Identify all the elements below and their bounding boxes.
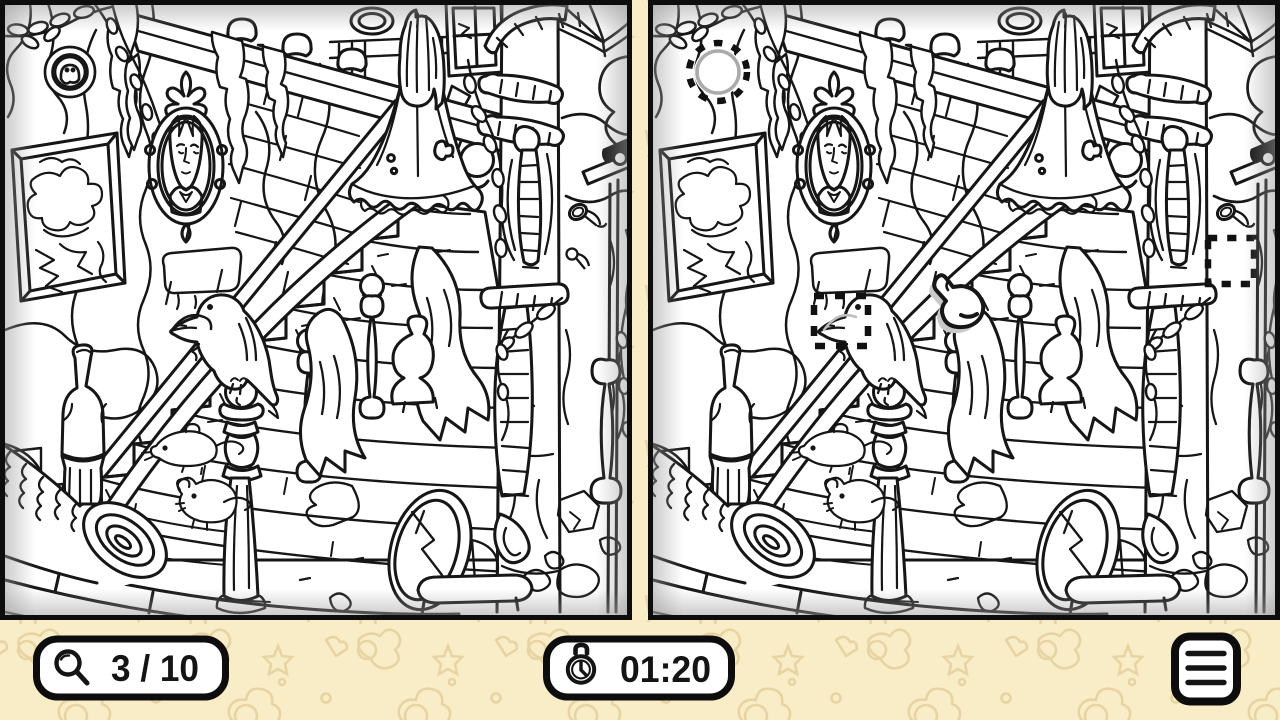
svg-text:01:20: 01:20	[620, 648, 711, 690]
svg-text:3 / 10: 3 / 10	[111, 647, 199, 689]
